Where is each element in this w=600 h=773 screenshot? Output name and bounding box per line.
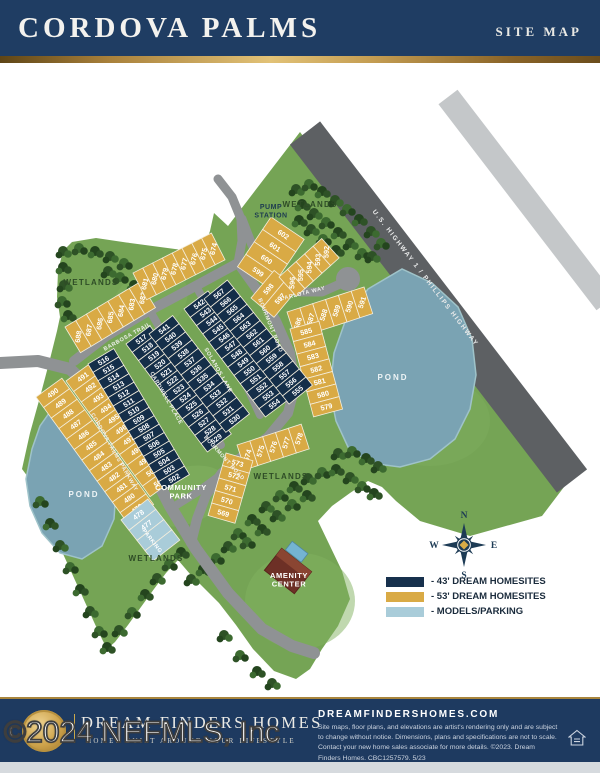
compass-letter: W	[429, 541, 439, 551]
community-title: CORDOVA PALMS	[18, 12, 321, 45]
builder-website: DREAMFINDERSHOMES.COM	[318, 709, 499, 720]
area-label: WETLANDS	[129, 554, 184, 563]
compass-letter: E	[491, 541, 497, 551]
lot-number: 592	[321, 246, 331, 258]
lot-number: 687	[84, 324, 95, 337]
area-label: WETLANDS	[283, 200, 338, 209]
gold-divider	[0, 56, 600, 63]
lot-number: 685	[105, 311, 116, 324]
lot-number: 683	[126, 298, 137, 311]
area-label: POND	[68, 490, 99, 499]
lot-number: 684	[116, 304, 127, 317]
carlota-culdesac	[336, 267, 360, 291]
site-map-page: CORDOVA PALMS SITE MAP 68868768668568468…	[0, 0, 600, 773]
legend-row: - 43' DREAM HOMESITES	[386, 576, 586, 587]
footer-bottom-strip	[0, 762, 600, 773]
equal-housing-icon	[568, 729, 586, 752]
area-label: WETLANDS	[254, 472, 309, 481]
tree-cluster	[217, 630, 233, 642]
legend-label: - MODELS/PARKING	[431, 606, 523, 617]
header-bar: CORDOVA PALMS SITE MAP	[0, 0, 600, 56]
legend-label: - 43' DREAM HOMESITES	[431, 576, 546, 587]
map-legend: - 43' DREAM HOMESITES- 53' DREAM HOMESIT…	[386, 576, 586, 621]
tree-cluster	[233, 650, 249, 662]
legend-swatch	[386, 607, 424, 617]
mls-watermark: ©2024 NEFMLS, Inc	[4, 716, 280, 750]
tree-cluster	[265, 678, 281, 690]
legend-row: - MODELS/PARKING	[386, 606, 586, 617]
area-label: WETLANDS	[64, 278, 119, 287]
legend-swatch	[386, 592, 424, 602]
lot-number: 686	[94, 317, 105, 330]
disclaimer-text: Site maps, floor plans, and elevations a…	[318, 723, 558, 764]
road-entrance	[0, 361, 70, 369]
legend-label: - 53' DREAM HOMESITES	[431, 591, 546, 602]
tree-cluster	[250, 666, 266, 678]
legend-swatch	[386, 577, 424, 587]
tree-cluster	[100, 642, 116, 654]
area-label: AMENITYCENTER	[270, 571, 308, 589]
lot-number: 688	[73, 330, 84, 343]
legend-row: - 53' DREAM HOMESITES	[386, 591, 586, 602]
sitemap-label: SITE MAP	[496, 24, 582, 40]
highway-far-lanes	[448, 97, 600, 303]
compass-letter: N	[461, 511, 468, 521]
area-label: POND	[377, 373, 408, 382]
